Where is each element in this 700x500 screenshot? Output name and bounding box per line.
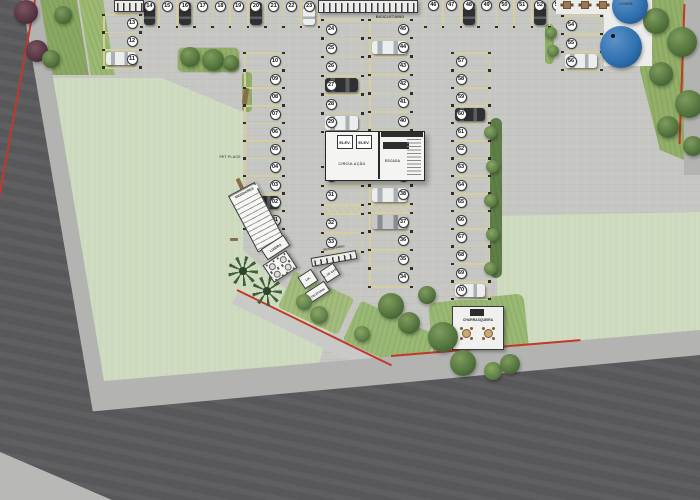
parking-space-number: 55 bbox=[566, 38, 577, 49]
tree-icon bbox=[54, 6, 72, 24]
stall-line bbox=[102, 49, 105, 52]
stall-line bbox=[368, 111, 371, 114]
pet-equipment bbox=[230, 238, 238, 241]
stall-line bbox=[321, 213, 324, 216]
stall-line bbox=[451, 210, 454, 213]
parking-space-number: 16 bbox=[179, 1, 190, 12]
stall-line bbox=[361, 213, 364, 216]
stall-line bbox=[322, 75, 363, 77]
building-core: ELEV. ELEV. CIRCULAÇÃO ESCADA bbox=[325, 131, 425, 181]
parking-space-number: 49 bbox=[481, 0, 492, 11]
site-plan: 1312111415161718192021222310090807060504… bbox=[0, 0, 700, 500]
bush-icon bbox=[486, 160, 499, 173]
stall-line bbox=[562, 33, 602, 35]
stall-line bbox=[322, 57, 363, 59]
stall-line bbox=[488, 87, 491, 90]
parking-space-number: 44 bbox=[398, 42, 409, 53]
stall-line bbox=[247, 26, 250, 29]
stall-line bbox=[282, 87, 285, 90]
stall-line bbox=[451, 52, 454, 55]
stall-line bbox=[103, 49, 141, 51]
stall-line bbox=[139, 49, 142, 52]
circulacao-label: CIRCULAÇÃO bbox=[327, 162, 377, 166]
parking-space-number: 58 bbox=[456, 74, 467, 85]
stall-line bbox=[282, 69, 285, 72]
stall-line bbox=[488, 140, 491, 143]
stall-line bbox=[243, 122, 246, 125]
stall-line bbox=[140, 26, 143, 29]
stall-line bbox=[103, 14, 141, 16]
stall-line bbox=[361, 251, 364, 254]
stall-line bbox=[410, 74, 413, 77]
stall-line bbox=[243, 140, 246, 143]
tree-icon bbox=[657, 116, 679, 138]
parking-space-number: 28 bbox=[326, 99, 337, 110]
parking-space-number: 64 bbox=[456, 180, 467, 191]
parking-space-number: 41 bbox=[398, 97, 409, 108]
patio-table bbox=[581, 1, 589, 9]
parking-space-number: 31 bbox=[326, 190, 337, 201]
tree-icon bbox=[398, 312, 420, 334]
stall-line bbox=[561, 33, 564, 36]
stall-line bbox=[321, 75, 324, 78]
parking-space-number: 65 bbox=[456, 197, 467, 208]
stall-line bbox=[322, 185, 363, 187]
stall-line bbox=[369, 286, 412, 288]
parking-space-number: 51 bbox=[517, 0, 528, 11]
stall-line bbox=[361, 56, 364, 59]
parking-space-number: 69 bbox=[456, 268, 467, 279]
stall-line bbox=[102, 14, 105, 17]
parking-space-number: 24 bbox=[326, 24, 337, 35]
stall-line bbox=[368, 203, 371, 206]
parking-space-number: 17 bbox=[197, 1, 208, 12]
stall-line bbox=[194, 0, 196, 28]
stall-line bbox=[531, 0, 533, 28]
stall-line bbox=[244, 140, 284, 142]
stall-line bbox=[264, 26, 267, 29]
bush-icon bbox=[486, 228, 499, 241]
stall-line bbox=[531, 26, 534, 29]
parking-space-number: 59 bbox=[456, 92, 467, 103]
stall-line bbox=[282, 192, 285, 195]
stall-line bbox=[282, 175, 285, 178]
stall-line bbox=[369, 268, 412, 270]
stall-line bbox=[451, 228, 454, 231]
stall-line bbox=[244, 123, 284, 125]
tree-icon bbox=[418, 286, 436, 304]
stall-line bbox=[600, 33, 603, 36]
parking-space-number: 06 bbox=[270, 127, 281, 138]
stall-line bbox=[452, 211, 490, 213]
stall-line bbox=[368, 92, 371, 95]
building-wall-dark bbox=[383, 142, 409, 149]
stall-line bbox=[243, 87, 246, 90]
stall-line bbox=[368, 184, 371, 187]
stall-line bbox=[212, 0, 214, 28]
stall-line bbox=[369, 38, 412, 40]
stall-line bbox=[451, 87, 454, 90]
stall-line bbox=[451, 122, 454, 125]
bike-icons bbox=[323, 3, 415, 12]
stall-line bbox=[452, 246, 490, 248]
stall-line bbox=[562, 51, 602, 53]
parking-space-number: 20 bbox=[250, 1, 261, 12]
stall-line bbox=[103, 15, 105, 68]
stall-line bbox=[410, 249, 413, 252]
parking-space-number: 54 bbox=[566, 20, 577, 31]
parking-space-number: 02 bbox=[270, 197, 281, 208]
stall-line bbox=[369, 212, 412, 214]
parking-space-number: 26 bbox=[326, 61, 337, 72]
stall-line bbox=[488, 52, 491, 55]
stall-line bbox=[244, 175, 284, 177]
tree-icon bbox=[675, 90, 700, 118]
tree-icon bbox=[223, 55, 239, 71]
parking-space-number: 60 bbox=[456, 109, 467, 120]
stall-line bbox=[369, 19, 412, 21]
stall-line bbox=[369, 203, 412, 205]
parking-space-number: 19 bbox=[233, 1, 244, 12]
stall-line bbox=[322, 38, 363, 40]
stall-line bbox=[282, 157, 285, 160]
stall-line bbox=[442, 26, 445, 29]
bush-icon bbox=[547, 45, 559, 57]
stall-line bbox=[176, 0, 178, 28]
bush-icon bbox=[310, 306, 328, 324]
parking-space-number: 57 bbox=[456, 56, 467, 67]
stall-line bbox=[361, 112, 364, 115]
parking-space-number: 36 bbox=[398, 235, 409, 246]
stall-line bbox=[451, 104, 454, 107]
stall-line bbox=[139, 14, 142, 17]
stall-line bbox=[488, 175, 491, 178]
stall-line bbox=[477, 26, 480, 29]
stall-line bbox=[410, 267, 413, 270]
parking-space-number: 67 bbox=[456, 232, 467, 243]
parking-space-number: 14 bbox=[144, 1, 155, 12]
elevator-1: ELEV. bbox=[337, 135, 353, 149]
grill bbox=[470, 309, 484, 316]
stall-line bbox=[247, 0, 249, 28]
lix-label: LIX. bbox=[301, 274, 315, 285]
parking-space-number: 07 bbox=[270, 109, 281, 120]
parking-space-number: 22 bbox=[286, 1, 297, 12]
stall-line bbox=[410, 230, 413, 233]
stall-line bbox=[410, 19, 413, 22]
round-table bbox=[283, 262, 293, 272]
parking-space-number: 66 bbox=[456, 215, 467, 226]
parking-space-number: 62 bbox=[456, 144, 467, 155]
stall-line bbox=[451, 157, 454, 160]
tree-icon bbox=[683, 136, 700, 156]
stall-line bbox=[193, 26, 196, 29]
parking-space-number: 27 bbox=[326, 80, 337, 91]
stall-line bbox=[321, 112, 324, 115]
stall-line bbox=[488, 298, 491, 301]
table-with-chairs bbox=[462, 329, 471, 338]
bush-icon bbox=[484, 262, 497, 275]
parking-space-number: 08 bbox=[270, 92, 281, 103]
stall-line bbox=[368, 212, 371, 215]
stall-line bbox=[176, 26, 179, 29]
stall-line bbox=[513, 26, 516, 29]
bike-rack-top-center bbox=[318, 0, 418, 13]
stall-line bbox=[368, 19, 371, 22]
stall-line bbox=[410, 203, 413, 206]
stall-line bbox=[211, 26, 214, 29]
stall-line bbox=[321, 166, 324, 169]
parking-space-number: 70 bbox=[456, 285, 467, 296]
stall-line bbox=[361, 204, 364, 207]
tree-icon bbox=[649, 62, 673, 86]
bush-icon bbox=[484, 126, 497, 139]
parking-space-number: 42 bbox=[398, 79, 409, 90]
stall-line bbox=[410, 286, 413, 289]
parking-space-number: 63 bbox=[456, 162, 467, 173]
stall-line bbox=[369, 231, 412, 233]
stall-line bbox=[321, 56, 324, 59]
stall-line bbox=[321, 185, 324, 188]
parking-space-number: 38 bbox=[398, 189, 409, 200]
stall-line bbox=[243, 175, 246, 178]
stall-line bbox=[361, 37, 364, 40]
stall-line bbox=[103, 67, 141, 69]
stall-line bbox=[244, 52, 284, 54]
stall-line bbox=[451, 192, 454, 195]
stall-line bbox=[321, 93, 324, 96]
stall-line bbox=[282, 52, 285, 55]
stall-line bbox=[139, 31, 142, 34]
tree-icon bbox=[450, 350, 476, 376]
stall-line bbox=[368, 286, 371, 289]
parking-space-number: 04 bbox=[270, 162, 281, 173]
churrasqueira-label: CHURRASQUEIRA bbox=[453, 318, 503, 322]
stall-line bbox=[321, 204, 324, 207]
stall-line bbox=[282, 210, 285, 213]
stall-line bbox=[139, 66, 142, 69]
stall-line bbox=[513, 0, 515, 28]
stall-line bbox=[452, 87, 490, 89]
stall-line bbox=[243, 104, 246, 107]
stall-line bbox=[244, 105, 284, 107]
stall-line bbox=[495, 26, 498, 29]
staircase bbox=[407, 139, 421, 175]
stall-line bbox=[282, 26, 285, 29]
stall-line bbox=[452, 52, 490, 54]
stall-line bbox=[282, 140, 285, 143]
parking-space-number: 32 bbox=[326, 218, 337, 229]
stall-line bbox=[244, 70, 284, 72]
stall-line bbox=[368, 249, 371, 252]
bush-icon bbox=[484, 194, 497, 207]
maroon-icon bbox=[14, 0, 38, 24]
parking-space-number: 45 bbox=[398, 24, 409, 35]
stall-line bbox=[460, 26, 463, 29]
stall-line bbox=[322, 204, 363, 206]
stall-line bbox=[496, 0, 498, 28]
parking-space-number: 05 bbox=[270, 144, 281, 155]
building-wall-dark bbox=[381, 132, 423, 137]
stall-line bbox=[600, 69, 603, 72]
stall-line bbox=[451, 175, 454, 178]
stall-line bbox=[410, 37, 413, 40]
stall-line bbox=[368, 55, 371, 58]
stall-line bbox=[368, 74, 371, 77]
stall-line bbox=[243, 52, 246, 55]
stall-line bbox=[321, 131, 324, 134]
stall-line bbox=[368, 230, 371, 233]
bike-icons bbox=[117, 3, 143, 11]
stall-line bbox=[488, 122, 491, 125]
stall-line bbox=[451, 263, 454, 266]
stall-line bbox=[361, 232, 364, 235]
parking-space-number: 46 bbox=[428, 0, 439, 11]
bicicletario-top-label: BICICLETÁRIO bbox=[362, 14, 418, 19]
stall-line bbox=[549, 0, 551, 28]
stall-line bbox=[488, 210, 491, 213]
tree-icon bbox=[500, 354, 520, 374]
parking-space-number: 11 bbox=[127, 54, 138, 65]
stall-line bbox=[282, 122, 285, 125]
parking-space-number: 43 bbox=[398, 61, 409, 72]
stall-line bbox=[158, 0, 160, 28]
stall-line bbox=[410, 55, 413, 58]
stall-line bbox=[488, 280, 491, 283]
stall-line bbox=[561, 15, 564, 18]
parking-space-number: 18 bbox=[215, 1, 226, 12]
parking-space-number: 10 bbox=[270, 56, 281, 67]
stall-line bbox=[452, 105, 490, 107]
stall-line bbox=[452, 228, 490, 230]
building-wall bbox=[378, 132, 380, 179]
parking-space-number: 56 bbox=[566, 56, 577, 67]
parking-space-number: 35 bbox=[398, 254, 409, 265]
stall-line bbox=[369, 93, 412, 95]
parking-space-number: 61 bbox=[456, 127, 467, 138]
stall-line bbox=[561, 69, 564, 72]
stall-line bbox=[488, 245, 491, 248]
parking-space-number: 15 bbox=[162, 1, 173, 12]
tree-icon bbox=[428, 322, 458, 352]
parking-space-number: 21 bbox=[268, 1, 279, 12]
stall-line bbox=[478, 0, 480, 28]
parking-space-number: 68 bbox=[456, 250, 467, 261]
stall-line bbox=[562, 69, 602, 71]
parking-space-number: 52 bbox=[534, 0, 545, 11]
parking-space-number: 47 bbox=[446, 0, 457, 11]
stall-line bbox=[321, 232, 324, 235]
stall-line bbox=[488, 69, 491, 72]
stall-line bbox=[102, 31, 105, 34]
parking-space-number: 09 bbox=[270, 74, 281, 85]
barbecue-area: CHURRASQUEIRA bbox=[452, 306, 504, 350]
stall-line bbox=[488, 104, 491, 107]
bush-icon bbox=[545, 27, 557, 39]
parking-space-number: 03 bbox=[270, 180, 281, 191]
stall-line bbox=[369, 249, 412, 251]
stall-line bbox=[322, 232, 363, 234]
stall-line bbox=[265, 0, 267, 28]
umbrella-icon bbox=[600, 26, 642, 68]
stall-line bbox=[452, 70, 490, 72]
parking-space-number: 50 bbox=[499, 0, 510, 11]
gas-label: L. DE GÁS bbox=[323, 268, 337, 279]
escada-label: ESCADA bbox=[379, 159, 406, 163]
stall-line bbox=[229, 26, 232, 29]
stall-line bbox=[451, 298, 454, 301]
stall-line bbox=[369, 185, 412, 187]
lounge-label: LOUNGE bbox=[606, 2, 646, 6]
tree-icon bbox=[42, 50, 60, 68]
table-with-chairs bbox=[484, 329, 493, 338]
stall-line bbox=[300, 0, 302, 28]
parking-space-number: 40 bbox=[398, 116, 409, 127]
stall-line bbox=[282, 104, 285, 107]
palm-icon bbox=[228, 256, 258, 286]
stall-line bbox=[460, 0, 462, 28]
stall-line bbox=[561, 51, 564, 54]
tree-icon bbox=[202, 49, 224, 71]
stall-line bbox=[452, 175, 490, 177]
stall-line bbox=[283, 0, 285, 28]
stall-line bbox=[562, 15, 602, 17]
stall-line bbox=[229, 0, 231, 28]
stall-line bbox=[369, 56, 412, 58]
stall-line bbox=[322, 213, 363, 215]
stall-line bbox=[322, 94, 363, 96]
stall-line bbox=[452, 158, 490, 160]
stall-line bbox=[322, 113, 363, 115]
tree-icon bbox=[667, 27, 697, 57]
parking-space-number: 29 bbox=[326, 117, 337, 128]
parking-space-number: 25 bbox=[326, 43, 337, 54]
stall-line bbox=[410, 184, 413, 187]
stall-line bbox=[361, 185, 364, 188]
parking-space-number: 34 bbox=[398, 272, 409, 283]
stall-line bbox=[321, 37, 324, 40]
stall-line bbox=[361, 75, 364, 78]
stall-line bbox=[244, 158, 284, 160]
stall-line bbox=[452, 281, 490, 283]
parking-space-number: 12 bbox=[127, 36, 138, 47]
bush-icon bbox=[296, 294, 312, 310]
stall-line bbox=[452, 299, 490, 301]
stall-line bbox=[321, 19, 324, 22]
parking-space-number: 13 bbox=[127, 18, 138, 29]
stall-line bbox=[102, 66, 105, 69]
palm-icon bbox=[252, 276, 282, 306]
stall-line bbox=[368, 267, 371, 270]
stall-line bbox=[244, 87, 284, 89]
stall-line bbox=[410, 92, 413, 95]
stall-line bbox=[452, 140, 490, 142]
stall-line bbox=[600, 15, 603, 18]
elevator-2: ELEV. bbox=[356, 135, 372, 149]
stall-line bbox=[451, 140, 454, 143]
stall-line bbox=[442, 0, 444, 28]
stall-line bbox=[451, 69, 454, 72]
bike-rack-top-left bbox=[114, 0, 144, 12]
stall-line bbox=[424, 26, 427, 29]
stall-line bbox=[300, 26, 303, 29]
stall-line bbox=[103, 32, 141, 34]
stall-line bbox=[318, 26, 321, 29]
stall-line bbox=[369, 74, 412, 76]
stall-line bbox=[322, 19, 363, 21]
stall-line bbox=[369, 111, 412, 113]
stall-line bbox=[282, 228, 285, 231]
